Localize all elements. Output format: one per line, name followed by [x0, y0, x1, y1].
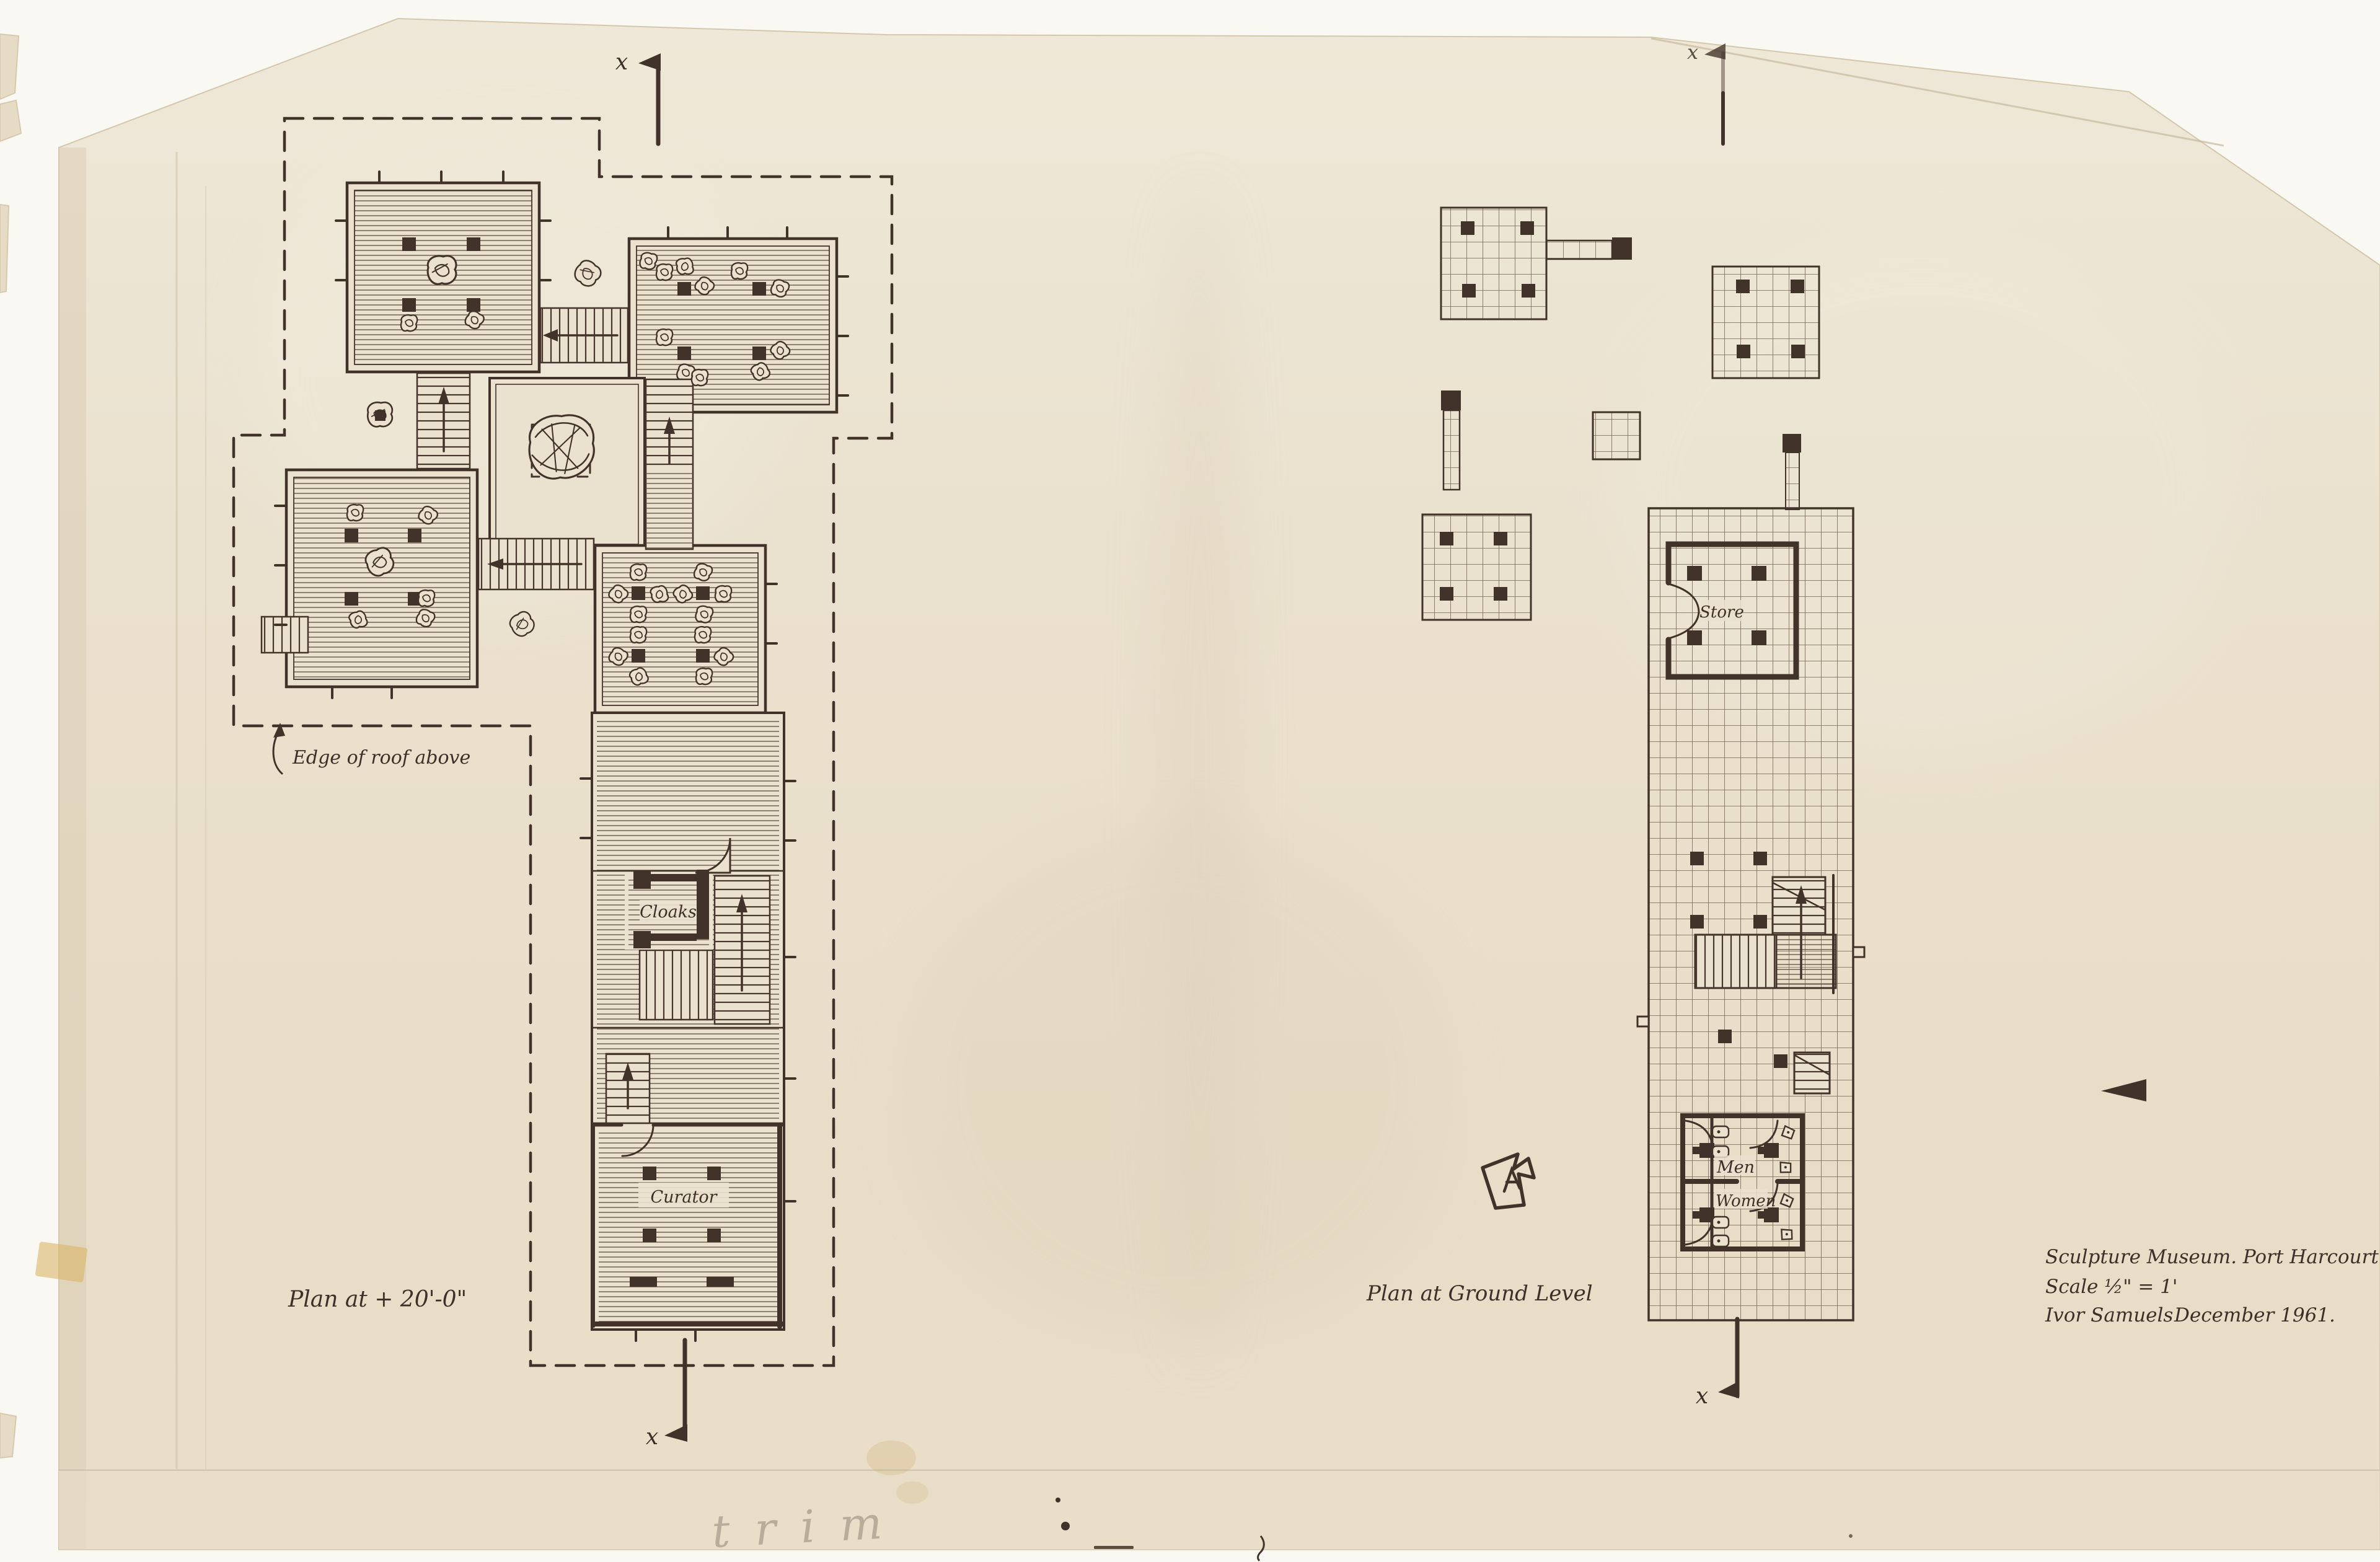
drawing-date: December 1961.	[2174, 1304, 2335, 1326]
pencil-note: trim	[710, 1496, 908, 1558]
roof-note-label: Edge of roof above	[292, 747, 470, 769]
curator-room: Curator	[594, 1125, 782, 1326]
svg-text:x: x	[1687, 40, 1698, 64]
sculpture	[428, 256, 456, 285]
torn-paper-bits	[0, 34, 21, 1458]
svg-text:x: x	[646, 1424, 658, 1450]
project-title: Sculpture Museum. Port Harcourt	[2045, 1246, 2379, 1268]
central-court	[490, 378, 645, 550]
cloaks-label: Cloaks	[640, 902, 697, 922]
svg-text:x: x	[615, 50, 628, 75]
curator-label: Curator	[650, 1188, 718, 1207]
store-label: Store	[1699, 603, 1744, 622]
gallery-d	[286, 470, 477, 687]
women-label: Women	[1716, 1192, 1776, 1211]
architect-name: Ivor Samuels	[2045, 1304, 2173, 1326]
men-label: Men	[1716, 1158, 1755, 1177]
ground-plan-caption: Plan at Ground Level	[1366, 1281, 1593, 1306]
gallery-a	[347, 183, 539, 372]
large-sculpture	[529, 415, 594, 479]
gallery-e	[595, 545, 765, 713]
small-stair	[1794, 1052, 1830, 1093]
tape-fragment	[35, 1242, 87, 1282]
scanned-drawing-sheet: trim Edge of roof above	[0, 0, 2380, 1562]
scale-note: Scale ½" = 1'	[2045, 1276, 2177, 1298]
upper-plan-caption: Plan at + 20'-0"	[288, 1287, 467, 1312]
cloaks-room: Cloaks	[625, 870, 713, 950]
drawing-svg: trim Edge of roof above	[0, 0, 2380, 1562]
entrance-wing: Cloaks Curator	[592, 713, 784, 1330]
svg-text:x: x	[1696, 1383, 1708, 1409]
